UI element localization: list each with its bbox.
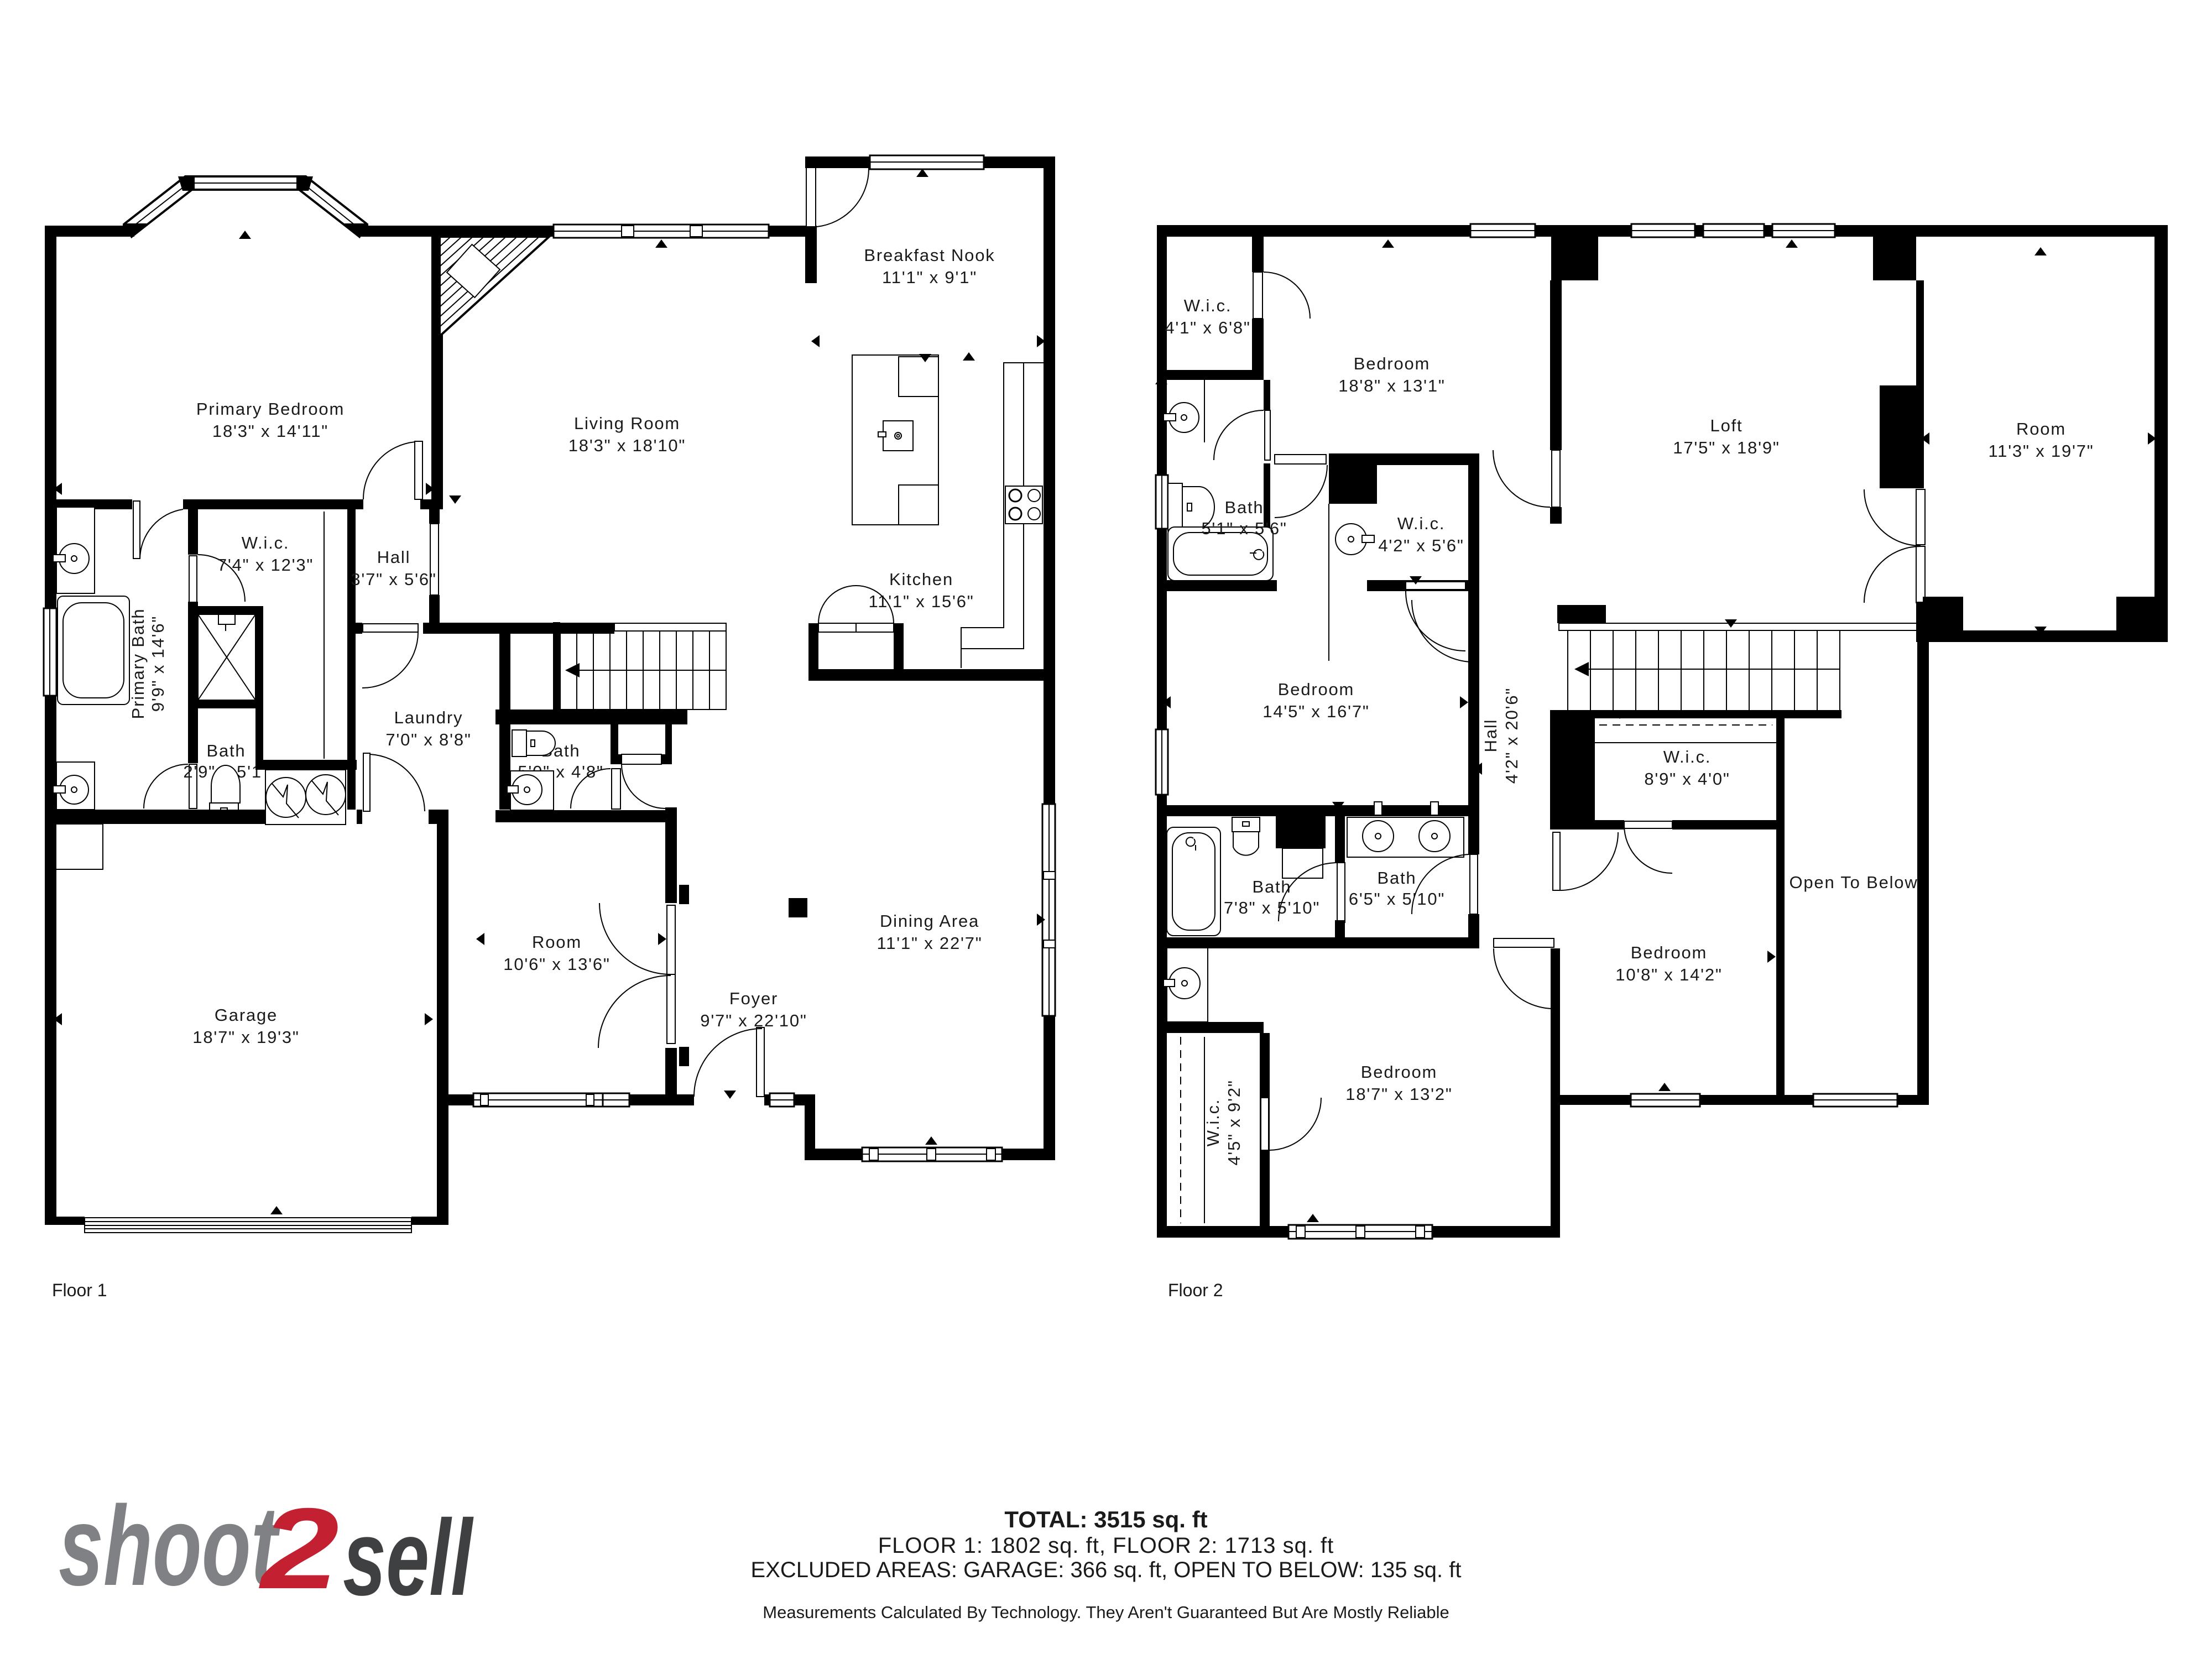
svg-text:TOTAL: 3515 sq. ft: TOTAL: 3515 sq. ft [1004,1506,1207,1532]
svg-text:Bedroom: Bedroom [1361,1062,1437,1082]
svg-text:Floor 2: Floor 2 [1168,1280,1223,1300]
svg-text:14'5" x 16'7": 14'5" x 16'7" [1262,702,1369,721]
svg-text:2: 2 [259,1485,340,1613]
svg-text:18'7" x 19'3": 18'7" x 19'3" [192,1027,299,1047]
svg-text:6'5" x 5'10": 6'5" x 5'10" [1349,889,1445,909]
svg-text:Measurements Calculated By Tec: Measurements Calculated By Technology. T… [763,1603,1449,1622]
svg-text:4'1" x 6'8": 4'1" x 6'8" [1165,318,1250,337]
svg-text:7'8" x 5'10": 7'8" x 5'10" [1224,898,1320,917]
svg-text:sell: sell [343,1498,474,1618]
svg-text:11'1" x 9'1": 11'1" x 9'1" [882,268,977,287]
svg-text:4'5" x 9'2": 4'5" x 9'2" [1224,1079,1244,1165]
svg-text:Bedroom: Bedroom [1631,943,1707,962]
svg-text:Room: Room [2016,419,2066,439]
svg-text:FLOOR 1: 1802 sq. ft, FLOOR 2:: FLOOR 1: 1802 sq. ft, FLOOR 2: 1713 sq. … [878,1533,1334,1558]
svg-text:Kitchen: Kitchen [889,570,953,589]
svg-text:18'3" x 14'11": 18'3" x 14'11" [212,421,328,441]
svg-text:W.i.c.: W.i.c. [1663,747,1712,766]
svg-text:Foyer: Foyer [729,989,778,1008]
svg-text:Garage: Garage [215,1005,278,1025]
svg-text:Primary Bedroom: Primary Bedroom [196,399,345,419]
svg-text:10'6" x 13'6": 10'6" x 13'6" [503,954,610,974]
svg-text:shoot: shoot [59,1482,281,1609]
svg-text:17'5" x 18'9": 17'5" x 18'9" [1673,438,1780,457]
svg-text:Bath: Bath [1225,498,1264,517]
svg-text:8'9" x 4'0": 8'9" x 4'0" [1644,769,1730,789]
svg-text:10'8" x 14'2": 10'8" x 14'2" [1615,965,1722,984]
svg-text:W.i.c.: W.i.c. [1184,296,1232,315]
svg-text:Hall: Hall [377,547,411,567]
svg-text:Room: Room [532,932,582,952]
svg-text:Floor 1: Floor 1 [52,1280,107,1300]
svg-text:3'7" x 5'6": 3'7" x 5'6" [351,570,436,589]
svg-text:18'8" x 13'1": 18'8" x 13'1" [1338,376,1445,395]
svg-text:Bedroom: Bedroom [1278,680,1354,699]
svg-text:W.i.c.: W.i.c. [1203,1099,1223,1147]
svg-text:Bath: Bath [1378,868,1417,888]
svg-text:18'3" x 18'10": 18'3" x 18'10" [568,436,686,455]
svg-text:11'1" x 22'7": 11'1" x 22'7" [877,933,982,953]
svg-text:7'0" x 8'8": 7'0" x 8'8" [385,730,471,749]
svg-text:Laundry: Laundry [394,708,463,727]
svg-text:EXCLUDED AREAS: GARAGE: 366 sq: EXCLUDED AREAS: GARAGE: 366 sq. ft, OPEN… [751,1558,1462,1582]
svg-text:Bedroom: Bedroom [1354,354,1430,373]
svg-text:7'4" x 12'3": 7'4" x 12'3" [217,555,314,575]
svg-text:5'1" x 5'6": 5'1" x 5'6" [1201,519,1287,538]
svg-text:Primary Bath: Primary Bath [128,608,148,719]
svg-text:Open To Below: Open To Below [1789,873,1918,892]
svg-text:W.i.c.: W.i.c. [1397,514,1446,533]
svg-text:W.i.c.: W.i.c. [242,533,290,552]
svg-text:4'2" x 5'6": 4'2" x 5'6" [1378,536,1464,555]
svg-text:9'9" x 14'6": 9'9" x 14'6" [148,615,168,712]
svg-text:11'1" x 15'6": 11'1" x 15'6" [868,592,974,611]
svg-text:Dining Area: Dining Area [880,911,979,931]
svg-text:Breakfast Nook: Breakfast Nook [864,246,995,265]
svg-text:4'2" x 20'6": 4'2" x 20'6" [1502,687,1521,784]
svg-text:Hall: Hall [1481,719,1500,753]
svg-text:Living Room: Living Room [574,414,680,433]
svg-text:18'7" x 13'2": 18'7" x 13'2" [1345,1084,1452,1104]
svg-text:Bath: Bath [207,741,246,760]
svg-text:11'3" x 19'7": 11'3" x 19'7" [1988,441,2094,461]
svg-text:Loft: Loft [1710,416,1743,435]
svg-text:9'7" x 22'10": 9'7" x 22'10" [700,1011,807,1030]
